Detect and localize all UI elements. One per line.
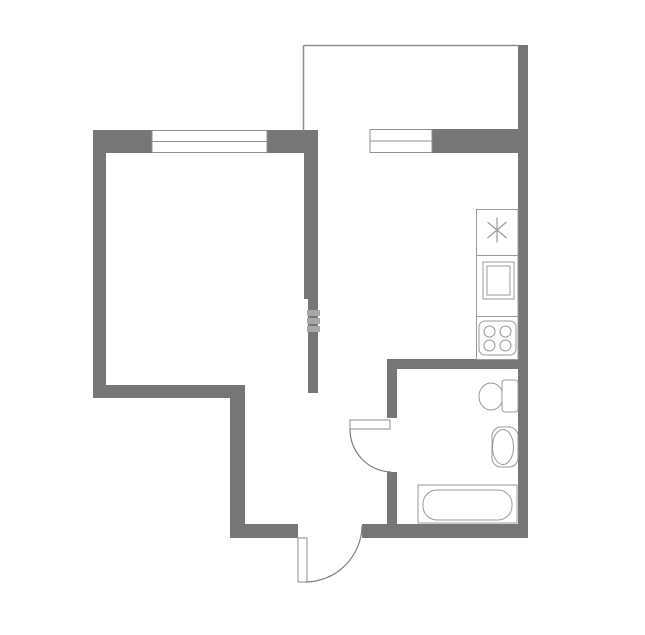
wall-corridor-left (230, 385, 245, 538)
toilet-tank (502, 380, 518, 412)
watermark-tick-2 (307, 318, 320, 324)
wall-middle-upper (304, 153, 318, 299)
stove-burner-top-left (484, 326, 495, 337)
wall-bottom-right-segment (362, 524, 528, 538)
wall-bath-kitchen-divider (387, 359, 518, 369)
watermark-tick-1 (307, 310, 320, 316)
wall-left-exterior (93, 130, 106, 398)
wall-bottom-left-segment (230, 524, 298, 538)
toilet-bowl (479, 383, 503, 410)
appliance-inner-box (487, 266, 510, 295)
floor-plan (0, 0, 645, 635)
wall-kitchen-top-segment (432, 129, 519, 153)
entry-door-arc (305, 526, 362, 582)
wall-top-middle-segment (267, 130, 318, 153)
wall-right-exterior (518, 45, 528, 538)
wall-bath-left-lower (387, 472, 397, 524)
stove-burner-bottom-right (500, 340, 511, 351)
wall-bath-left-upper (387, 359, 397, 418)
stove-outline (479, 321, 516, 355)
sink-counter (492, 427, 518, 467)
bathroom-door-leaf (350, 420, 390, 429)
stove-burner-top-right (500, 326, 511, 337)
appliance-outer-box (483, 262, 514, 299)
bathroom-door-arc (350, 429, 391, 472)
wall-room-bottom (93, 385, 245, 398)
watermark-tick-3 (307, 326, 320, 332)
stove-burner-bottom-left (484, 340, 495, 351)
floor-plan-svg (0, 0, 645, 635)
entry-door-leaf (298, 538, 307, 582)
